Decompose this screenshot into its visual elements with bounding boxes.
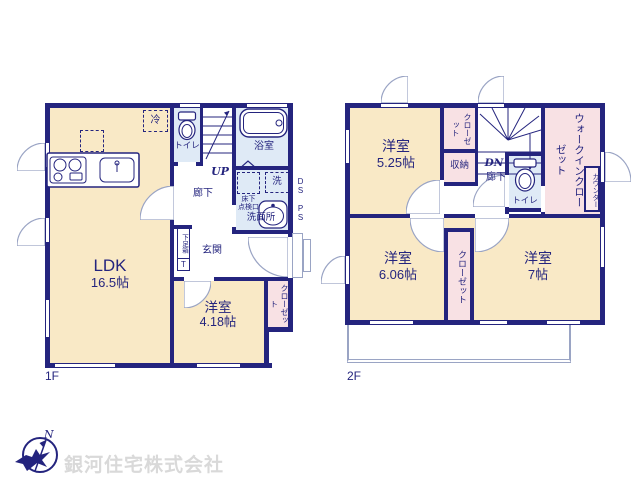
bedroom3-name: 洋室 [508,250,568,266]
bedroom2-name: 洋室 [368,250,428,266]
floor1-label: 1F [45,370,69,384]
doorway-patch [444,218,474,228]
door-opening [440,180,444,214]
ldk-size: 16.5帖 [78,276,142,291]
balcony [347,325,571,363]
closet-label-1f: クローゼット [268,284,289,324]
wall [264,327,269,368]
bedroom3-size: 7帖 [508,268,568,283]
wall [232,103,236,170]
floor-hatch [237,172,260,194]
shoe-box: 下足箱 [177,228,190,259]
floorplan-canvas: 冷 洗 トイレ UP 浴室 床下 点検口 洗面所 廊下 下足箱 T 玄関 LDK… [0,0,640,480]
door-opening [178,162,196,166]
wall [505,208,545,212]
shoe-box-t: T [177,258,190,271]
window [381,103,408,108]
fridge-label: 冷 [143,115,168,127]
storage-label: 収納 [445,161,474,172]
bedroom1-name: 洋室 [366,138,426,154]
counter-label: カウンター [586,169,599,211]
toilet-icon-2f [512,158,538,194]
window [180,103,200,108]
wic-label: ウォークインクローゼット [550,112,588,208]
bathtub-icon [238,107,290,140]
wall [444,232,448,320]
casement-window-arc [17,143,45,171]
stairs-up [203,108,232,162]
casement-window-arc [381,76,408,103]
dn-label: DN [482,157,506,169]
window [55,363,115,368]
kitchen-counter [46,152,140,188]
closet-a-label: クローゼット [447,110,473,148]
bedroom-1f-size: 4.18帖 [190,315,246,329]
compass-n-label: N [43,428,54,441]
ps-label: PS [295,201,305,225]
door-swing-bedroom3 [475,218,509,252]
window [197,363,240,368]
bath-label: 浴室 [238,141,290,153]
window [345,256,350,284]
bedroom1-size: 5.25帖 [362,156,430,171]
up-label: UP [205,166,235,179]
pantry-space [80,130,104,152]
door-swing-bedroom1 [406,180,440,214]
door-swing-bedroom2 [410,218,444,252]
wall [440,149,478,153]
bedroom2-size: 6.06帖 [362,268,434,283]
wall [470,232,474,320]
company-name: 銀河住宅株式会社 [64,450,224,477]
folding-door-icon [239,160,257,170]
washroom-label: 洗面所 [234,213,288,224]
hallway-label-2f: 廊下 [479,172,513,184]
casement-window-arc [605,152,631,182]
casement-window-arc [321,256,345,284]
floor2-label: 2F [347,370,373,384]
hallway-label-1f: 廊下 [186,188,220,200]
door-swing-entrance [248,237,288,277]
ldk-name: LDK [83,256,137,276]
window [45,300,50,337]
porch-step [303,239,311,272]
bedroom-1f-name: 洋室 [194,300,242,316]
casement-window-arc [478,76,504,103]
wall [232,230,293,234]
entrance-label: 玄関 [194,245,230,257]
toilet-label-1f: トイレ [171,141,203,151]
hatch-label: 床下 点検口 [232,196,265,212]
closet-b-label: クローゼット [450,240,468,314]
window [345,130,350,163]
washer-label: 洗 [265,177,289,188]
toilet-icon-1f [177,111,197,141]
casement-window-arc [17,218,45,246]
window [600,227,605,267]
ds-label: DS [295,174,305,198]
door-swing-ldk [140,186,174,220]
compass-icon: N [14,426,66,478]
room-ldk [50,108,170,363]
porch-step [292,233,303,278]
door-opening [541,186,545,212]
toilet-label-2f: トイレ [509,196,541,206]
window [45,218,50,242]
